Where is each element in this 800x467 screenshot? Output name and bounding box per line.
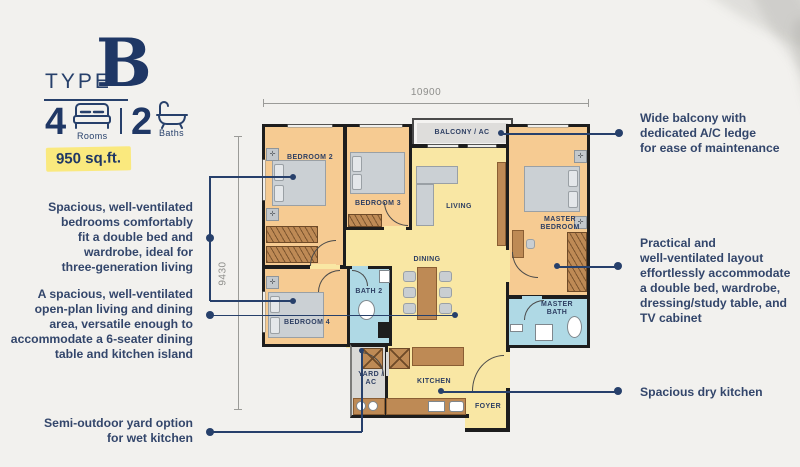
kitchen-counter <box>412 347 464 366</box>
dimension-line-top <box>263 103 589 104</box>
leader-line <box>557 266 618 268</box>
pillow <box>352 156 362 172</box>
nightstand-icon: ✛ <box>266 148 279 161</box>
pillow <box>270 317 280 334</box>
wardrobe <box>266 226 318 243</box>
label-bedroom3: BEDROOM 3 <box>355 200 401 208</box>
dining-table <box>417 267 437 320</box>
label-master-bath: MASTER BATH <box>541 301 573 317</box>
label-dining: DINING <box>414 256 441 264</box>
leader-dot <box>614 262 622 270</box>
label-kitchen: KITCHEN <box>417 378 451 386</box>
window <box>468 145 496 147</box>
window <box>288 125 332 127</box>
header-divider <box>120 108 122 134</box>
wardrobe <box>567 232 587 292</box>
door-gap <box>384 226 406 231</box>
door-gap <box>522 296 542 300</box>
column <box>378 322 392 338</box>
annotation-living-dining: A spacious, well-ventilated open-plan li… <box>0 287 193 362</box>
baths-count: 2 <box>131 105 152 139</box>
dining-chair <box>439 303 452 314</box>
dimension-tick <box>234 409 242 410</box>
leader-line <box>210 300 293 302</box>
area-badge: 950 sq.ft. <box>46 146 131 171</box>
leader-line <box>210 431 362 433</box>
leader-line <box>361 352 363 432</box>
bath-icon <box>155 100 189 130</box>
label-living: LIVING <box>446 203 472 211</box>
leader-line <box>441 391 618 393</box>
sofa <box>416 184 434 226</box>
leader-dot <box>614 387 622 395</box>
stove-icon <box>368 401 378 411</box>
nightstand-icon: ✛ <box>574 150 587 163</box>
leader-line <box>210 176 293 178</box>
leader-dot <box>206 428 214 436</box>
leader-dot <box>206 311 214 319</box>
leader-dot <box>290 298 296 304</box>
label-balcony: BALCONY / AC <box>435 129 490 137</box>
pillow <box>352 174 362 190</box>
baths-label: Baths <box>159 128 184 138</box>
dimension-tick <box>234 136 242 137</box>
annotation-kitchen: Spacious dry kitchen <box>640 385 800 400</box>
leader-dot <box>206 234 214 242</box>
leader-dot <box>615 129 623 137</box>
door-gap <box>506 250 510 282</box>
window <box>263 160 265 200</box>
dining-chair <box>439 271 452 282</box>
window <box>428 145 458 147</box>
hob-icon <box>449 401 464 412</box>
nightstand-icon: ✛ <box>266 276 279 289</box>
pillow <box>274 185 284 202</box>
label-master-bedroom: MASTER BEDROOM <box>540 216 579 232</box>
sink <box>510 324 523 332</box>
dimension-left-value: 9430 <box>218 246 229 302</box>
dimension-tick <box>263 99 264 107</box>
leader-dot <box>359 348 364 353</box>
toilet <box>358 300 375 320</box>
dining-chair <box>439 287 452 298</box>
pillow <box>568 191 578 208</box>
pillow <box>568 170 578 187</box>
label-bedroom4: BEDROOM 4 <box>284 319 330 327</box>
label-bath2: BATH 2 <box>355 288 382 296</box>
dining-chair <box>403 287 416 298</box>
tv-cabinet <box>497 162 506 246</box>
leader-dot <box>438 388 444 394</box>
kitchen-sink <box>428 401 445 412</box>
label-foyer: FOYER <box>475 403 501 411</box>
bed-icon <box>72 102 112 130</box>
pillow <box>274 164 284 181</box>
leader-dot <box>498 130 504 136</box>
nightstand-icon: ✛ <box>266 208 279 221</box>
leader-line <box>501 133 619 135</box>
window <box>360 125 402 127</box>
leader-line <box>210 315 455 317</box>
desk-chair <box>526 239 535 249</box>
label-yard: YARD / AC <box>358 371 383 387</box>
annotation-bedrooms: Spacious, well-ventilated bedrooms comfo… <box>8 200 193 275</box>
annotation-master: Practical and well-ventilated layout eff… <box>640 236 800 326</box>
leader-dot <box>290 174 296 180</box>
wardrobe <box>348 214 382 227</box>
window <box>528 125 568 127</box>
rooms-label: Rooms <box>77 131 108 141</box>
wall <box>465 428 510 432</box>
annotation-yard: Semi-outdoor yard option for wet kitchen <box>8 416 193 446</box>
rooms-count: 4 <box>45 105 66 139</box>
toilet <box>567 316 582 338</box>
type-letter: B <box>96 32 152 94</box>
dining-chair <box>403 303 416 314</box>
dimension-top-value: 10900 <box>376 87 476 98</box>
sofa <box>416 166 458 184</box>
dimension-tick <box>588 99 589 107</box>
leader-dot <box>554 263 560 269</box>
door-gap <box>506 352 510 388</box>
sink <box>379 270 390 283</box>
annotation-balcony: Wide balcony with dedicated A/C ledge fo… <box>640 111 800 156</box>
shower <box>535 324 553 341</box>
pillow <box>270 296 280 313</box>
label-bedroom2: BEDROOM 2 <box>287 154 333 162</box>
appliance-icon <box>389 348 410 369</box>
window <box>263 292 265 332</box>
leader-dot <box>452 312 458 318</box>
dining-chair <box>403 271 416 282</box>
